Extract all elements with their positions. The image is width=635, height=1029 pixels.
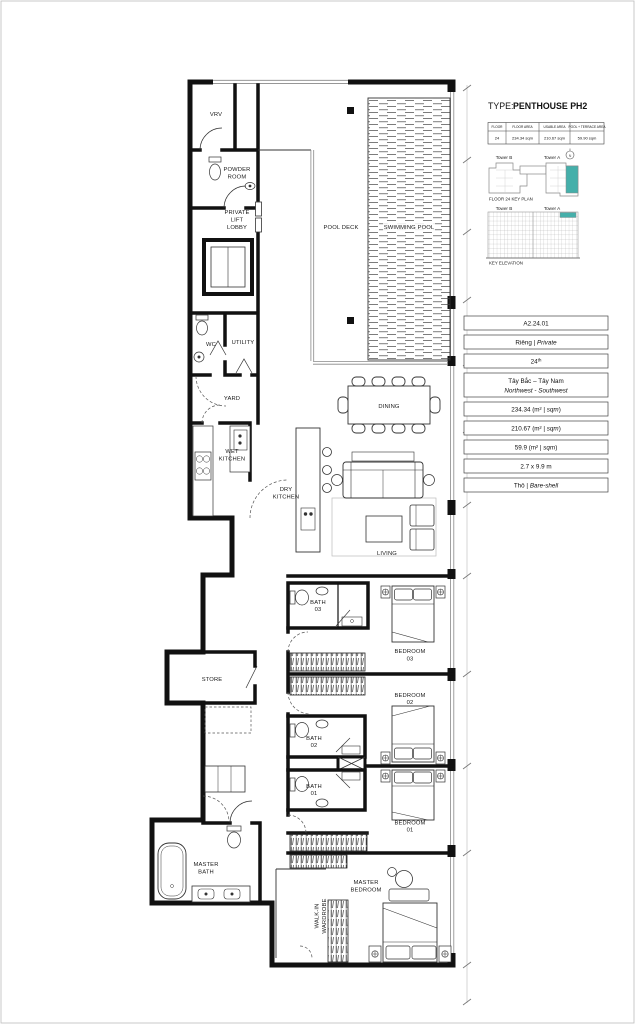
room-label-bed02-1: BEDROOM	[394, 693, 425, 699]
room-label-powder-2: ROOM	[228, 175, 247, 181]
elevation-tower-a-label: Tower A	[544, 206, 561, 211]
room-label-lift-2: LIFT	[231, 218, 244, 224]
room-label-lift-1: PRIVATE	[225, 210, 250, 216]
spec-header-floor-area: FLOOR AREA	[512, 125, 533, 129]
room-label-bed02-2: 02	[407, 700, 414, 706]
room-label-wc: WC	[206, 342, 216, 348]
key-elevation: Tower B Tower A KEY ELEVATION	[486, 206, 580, 266]
column	[347, 317, 354, 324]
info-row-handover: Thô | Bare-shell	[514, 483, 559, 490]
info-row-usable-area: 210.67 (m² | sqm)	[511, 426, 561, 433]
elevation-tower-b-label: Tower B	[496, 206, 513, 211]
room-label-master-bed-2: BEDROOM	[350, 888, 381, 894]
room-label-pool-deck: POOL DECK	[324, 225, 359, 231]
room-label-bed01-1: BEDROOM	[394, 821, 425, 827]
room-label-bath03-1: BATH	[310, 600, 326, 606]
type-value: PENTHOUSE PH2	[513, 101, 587, 111]
key-elevation-caption: KEY ELEVATION	[489, 261, 523, 266]
room-label-pool: SWIMMING POOL	[384, 225, 435, 231]
room-label-bath01-2: 01	[311, 791, 318, 797]
room-label-bed03-2: 03	[407, 657, 414, 663]
key-plan-tower-a-label: Tower A	[544, 155, 561, 160]
room-label-bath02-1: BATH	[306, 736, 322, 742]
spec-header-floor: FLOOR	[492, 125, 504, 129]
bath-03	[288, 583, 368, 628]
walk-in-closet	[328, 900, 348, 962]
elevation-highlighted-floor	[560, 213, 576, 218]
spec-header-usable-area: USABLE AREA	[544, 125, 567, 129]
spec-value-floor-area: 234.34 sqm	[512, 136, 534, 141]
bath-01	[288, 770, 365, 810]
room-label-bath01-1: BATH	[306, 784, 322, 790]
key-plan-tower-b-label: Tower B	[496, 155, 513, 160]
info-row-floor-area: 234.34 (m² | sqm)	[511, 407, 561, 414]
room-label-walkin-1: WALK-IN	[315, 904, 321, 929]
room-label-utility: UTILITY	[232, 340, 255, 346]
info-row-pool-size: 2.7 x 9.9 m	[520, 464, 551, 471]
room-label-bath03-2: 03	[315, 607, 322, 613]
room-label-bed03-1: BEDROOM	[394, 649, 425, 655]
room-label-store: STORE	[202, 677, 223, 683]
spec-value-usable-area: 210.67 sqm	[544, 136, 566, 141]
room-label-master-bath-1: MASTER	[193, 862, 218, 868]
room-label-living: LIVING	[377, 551, 397, 557]
spec-table: FLOOR FLOOR AREA USABLE AREA POOL + TERR…	[488, 123, 606, 145]
spec-value-pool-terrace: 59.90 sqm	[578, 136, 597, 141]
room-label-yard: YARD	[224, 396, 240, 402]
info-row-orientation-line1: Tây Bắc – Tây Nam	[508, 376, 564, 385]
room-label-master-bed-1: MASTER	[353, 880, 378, 886]
round-table	[396, 871, 413, 888]
info-row-ownership: Riêng | Private	[515, 340, 557, 347]
room-label-walkin-2: WARDROBE	[322, 898, 328, 933]
room-label-lift-3: LOBBY	[227, 225, 247, 231]
column	[347, 107, 354, 114]
room-label-bath02-2: 02	[311, 743, 318, 749]
key-plan-highlighted-unit	[566, 166, 578, 193]
spec-value-floor: 24	[495, 136, 500, 141]
info-row-pool-terrace-area: 59.9 (m² | sqm)	[515, 445, 558, 452]
room-label-wet-2: KITCHEN	[219, 457, 246, 463]
floorplan-page: VRV POWDER ROOM PRIVATE LIFT LOBBY WC UT…	[0, 0, 635, 1024]
title-block: TYPE: PENTHOUSE PH2	[488, 101, 587, 111]
type-label: TYPE:	[488, 101, 513, 111]
service-shaft	[338, 757, 365, 770]
unit-info-table: A2.24.01 Riêng | Private 24th Tây Bắc – …	[464, 316, 608, 492]
info-row-orientation-line2: Northwest - Southwest	[504, 388, 568, 395]
spec-header-pool-terrace: POOL + TERRACE AREA	[569, 125, 607, 129]
room-label-wet-1: WET	[225, 449, 239, 455]
room-label-dry-2: KITCHEN	[273, 495, 300, 501]
svg-text:N: N	[569, 154, 572, 158]
room-label-master-bath-2: BATH	[198, 870, 214, 876]
bath-02	[288, 716, 365, 757]
room-label-powder-1: POWDER	[224, 167, 251, 173]
room-label-vrv: VRV	[210, 112, 222, 118]
room-label-dry-1: DRY	[280, 487, 293, 493]
info-row-unit-code: A2.24.01	[523, 321, 549, 328]
chair	[388, 868, 397, 877]
room-label-dining: DINING	[378, 404, 400, 410]
room-label-bed01-2: 01	[407, 828, 414, 834]
key-plan-caption: FLOOR 24 KEY PLAN	[489, 197, 533, 202]
